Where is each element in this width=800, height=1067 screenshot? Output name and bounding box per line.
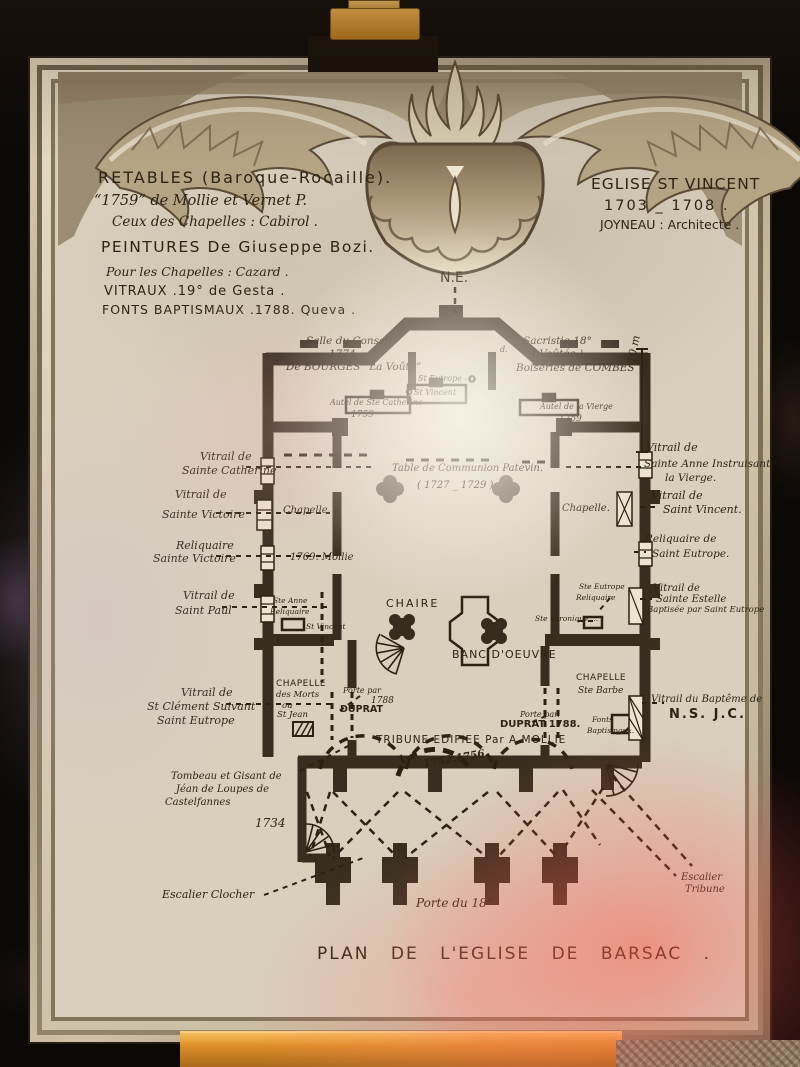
left-escalier-clocher: Escalier Clocher bbox=[162, 889, 254, 900]
right-ste-anne-3: la Vierge. bbox=[665, 473, 716, 484]
right-estelle-2: Sainte Estelle bbox=[656, 595, 726, 605]
ste-eutrope-rel-2: Reliquaire bbox=[576, 594, 615, 602]
left-tombeau-2: Jéan de Loupes de bbox=[176, 785, 269, 795]
altar-st-eutrope: St Eutrope - o bbox=[418, 375, 475, 383]
autel-ste-catherine-date: 1759 bbox=[351, 411, 374, 420]
porte-right-2: DUPRAT 1788. bbox=[500, 720, 580, 730]
right-st-vincent-2: Saint Vincent. bbox=[663, 504, 742, 515]
plan-pillars bbox=[376, 475, 520, 644]
room-sacristie-voutee: ( Voûtée ) bbox=[532, 349, 583, 360]
right-ste-anne-1: Vitrail de bbox=[646, 442, 698, 453]
note-vitraux: VITRAUX .19° de Gesta . bbox=[104, 285, 285, 298]
note-retables: RETABLES (Baroque-Rocaille). bbox=[98, 170, 392, 186]
room-sacristie: Sacristie 18° bbox=[523, 336, 592, 347]
left-tombeau-3: Castelfannes bbox=[165, 798, 230, 808]
note-peintures-chapelles: Pour les Chapelles : Cazard . bbox=[106, 266, 289, 279]
right-rel-eutrope-2: Saint Eutrope. bbox=[652, 549, 729, 560]
fonts-bapt-1: Fonts bbox=[592, 716, 613, 724]
chapelle-morts-4: St Jean bbox=[277, 711, 308, 720]
plan-title: PLAN DE L'EGLISE DE BARSAC . bbox=[317, 946, 711, 963]
chapelle-morts-2: des Morts bbox=[276, 691, 319, 700]
left-tombeau-1: Tombeau et Gisant de bbox=[171, 772, 282, 782]
date-1734: 1734 bbox=[255, 817, 286, 829]
left-rel-victoire-2: Sainte Victoire bbox=[153, 553, 236, 564]
porte-right-1: Porte par. bbox=[520, 711, 560, 719]
right-ste-anne-2: Sainte Anne Instruisant bbox=[644, 459, 770, 470]
room-sacristie-boiseries: Boiseries de COMBES bbox=[516, 363, 635, 374]
ste-anne-2: Reliquaire bbox=[270, 608, 309, 616]
chapelle-left: Chapelle. bbox=[283, 506, 331, 516]
left-paul-2: Saint Paul bbox=[175, 605, 232, 616]
room-salle-conseil: Salle du Conseil. bbox=[306, 336, 395, 347]
compass-ne: N.E. bbox=[440, 271, 468, 285]
left-clement-1: Vitrail de bbox=[181, 687, 233, 698]
porte-left-3: DUPRAT bbox=[340, 705, 383, 715]
chapelle-barbe-1: CHAPELLE bbox=[576, 674, 626, 683]
table-communion-dates: ( 1727 _ 1729 ) bbox=[417, 481, 493, 491]
left-victoire-1: Vitrail de bbox=[175, 489, 227, 500]
ste-anne-1: Ste Anne bbox=[273, 597, 308, 605]
right-estelle-3: Baptisée par Saint Eutrope bbox=[647, 606, 764, 615]
autel-vierge: Autel de la Vierge bbox=[540, 403, 613, 411]
ste-eutrope-rel-1: Ste Eutrope bbox=[579, 583, 625, 591]
left-clement-3: Saint Eutrope bbox=[157, 715, 235, 726]
note-peintures: PEINTURES De Giuseppe Bozi. bbox=[101, 240, 375, 256]
st-vincent-small: St Vincent bbox=[306, 623, 346, 631]
chapelle-right: Chapelle. bbox=[562, 504, 610, 514]
left-clement-2: St Clément Suivant bbox=[147, 701, 255, 712]
mark-d: d. bbox=[500, 346, 508, 354]
right-bapteme-2: N.S. J.C. bbox=[669, 708, 746, 721]
autel-ste-catherine: Autel de Ste Catherine bbox=[330, 399, 423, 407]
autel-vierge-date: 1759 bbox=[559, 415, 582, 424]
right-bapteme-1: Vitrail du Baptême de bbox=[651, 695, 762, 705]
altar-st-vincent: St Vincent bbox=[414, 389, 456, 397]
right-escalier-tribune-1: Escalier bbox=[681, 873, 722, 883]
ste-veronique: Ste Véronique ... bbox=[535, 615, 598, 623]
chapelle-morts-1: CHAPELLE bbox=[276, 680, 326, 689]
right-rel-eutrope-1: Reliquaire de bbox=[645, 534, 716, 545]
note-architecte: JOYNEAU : Architecte . bbox=[600, 219, 739, 232]
plan-walls bbox=[254, 305, 660, 905]
mollie-1769: 1769. Mollie bbox=[290, 553, 354, 563]
left-paul-1: Vitrail de bbox=[183, 590, 235, 601]
table-communion: Table de Communion Patevin. bbox=[392, 464, 543, 474]
porte-18: Porte du 18° bbox=[416, 897, 493, 909]
left-catherine-2: Sainte Catherine bbox=[182, 465, 276, 476]
banc-oeuvre-label: BANC D'OEUVRE bbox=[452, 649, 557, 660]
note-eglise-title: EGLISE ST VINCENT bbox=[591, 177, 760, 193]
note-eglise-dates: 1703 _ 1708 . bbox=[604, 199, 730, 214]
tribune-label: TRIBUNE EDIFIEE Par A MOLLIE bbox=[376, 735, 566, 746]
left-victoire-2: Sainte Victoire bbox=[162, 509, 245, 520]
fonts-bapt-2: Baptismaux. bbox=[587, 727, 634, 735]
porte-left-1: Porte par bbox=[343, 687, 381, 695]
room-salle-conseil-date: 1774 bbox=[329, 349, 356, 360]
chapelle-barbe-2: Ste Barbe bbox=[578, 687, 623, 696]
room-salle-conseil-author: De BOURGES “La Voûte” bbox=[286, 362, 421, 373]
note-retables-chapelles: Ceux des Chapelles : Cabirol . bbox=[112, 216, 318, 230]
note-retables-date: “1759” de Mollie et Vernet P. bbox=[94, 194, 307, 209]
left-rel-victoire-1: Reliquaire bbox=[176, 540, 234, 551]
left-catherine-1: Vitrail de bbox=[200, 451, 252, 462]
right-estelle-1: Vitrail de bbox=[653, 584, 700, 594]
note-fonts: FONTS BAPTISMAUX .1788. Queva . bbox=[102, 304, 356, 317]
photo-of-framed-church-plan: RETABLES (Baroque-Rocaille). “1759” de M… bbox=[0, 0, 800, 1067]
right-escalier-tribune-2: Tribune bbox=[685, 885, 725, 895]
right-st-vincent-1: Vitrail de bbox=[651, 490, 703, 501]
chaire-label: CHAIRE bbox=[386, 598, 439, 609]
